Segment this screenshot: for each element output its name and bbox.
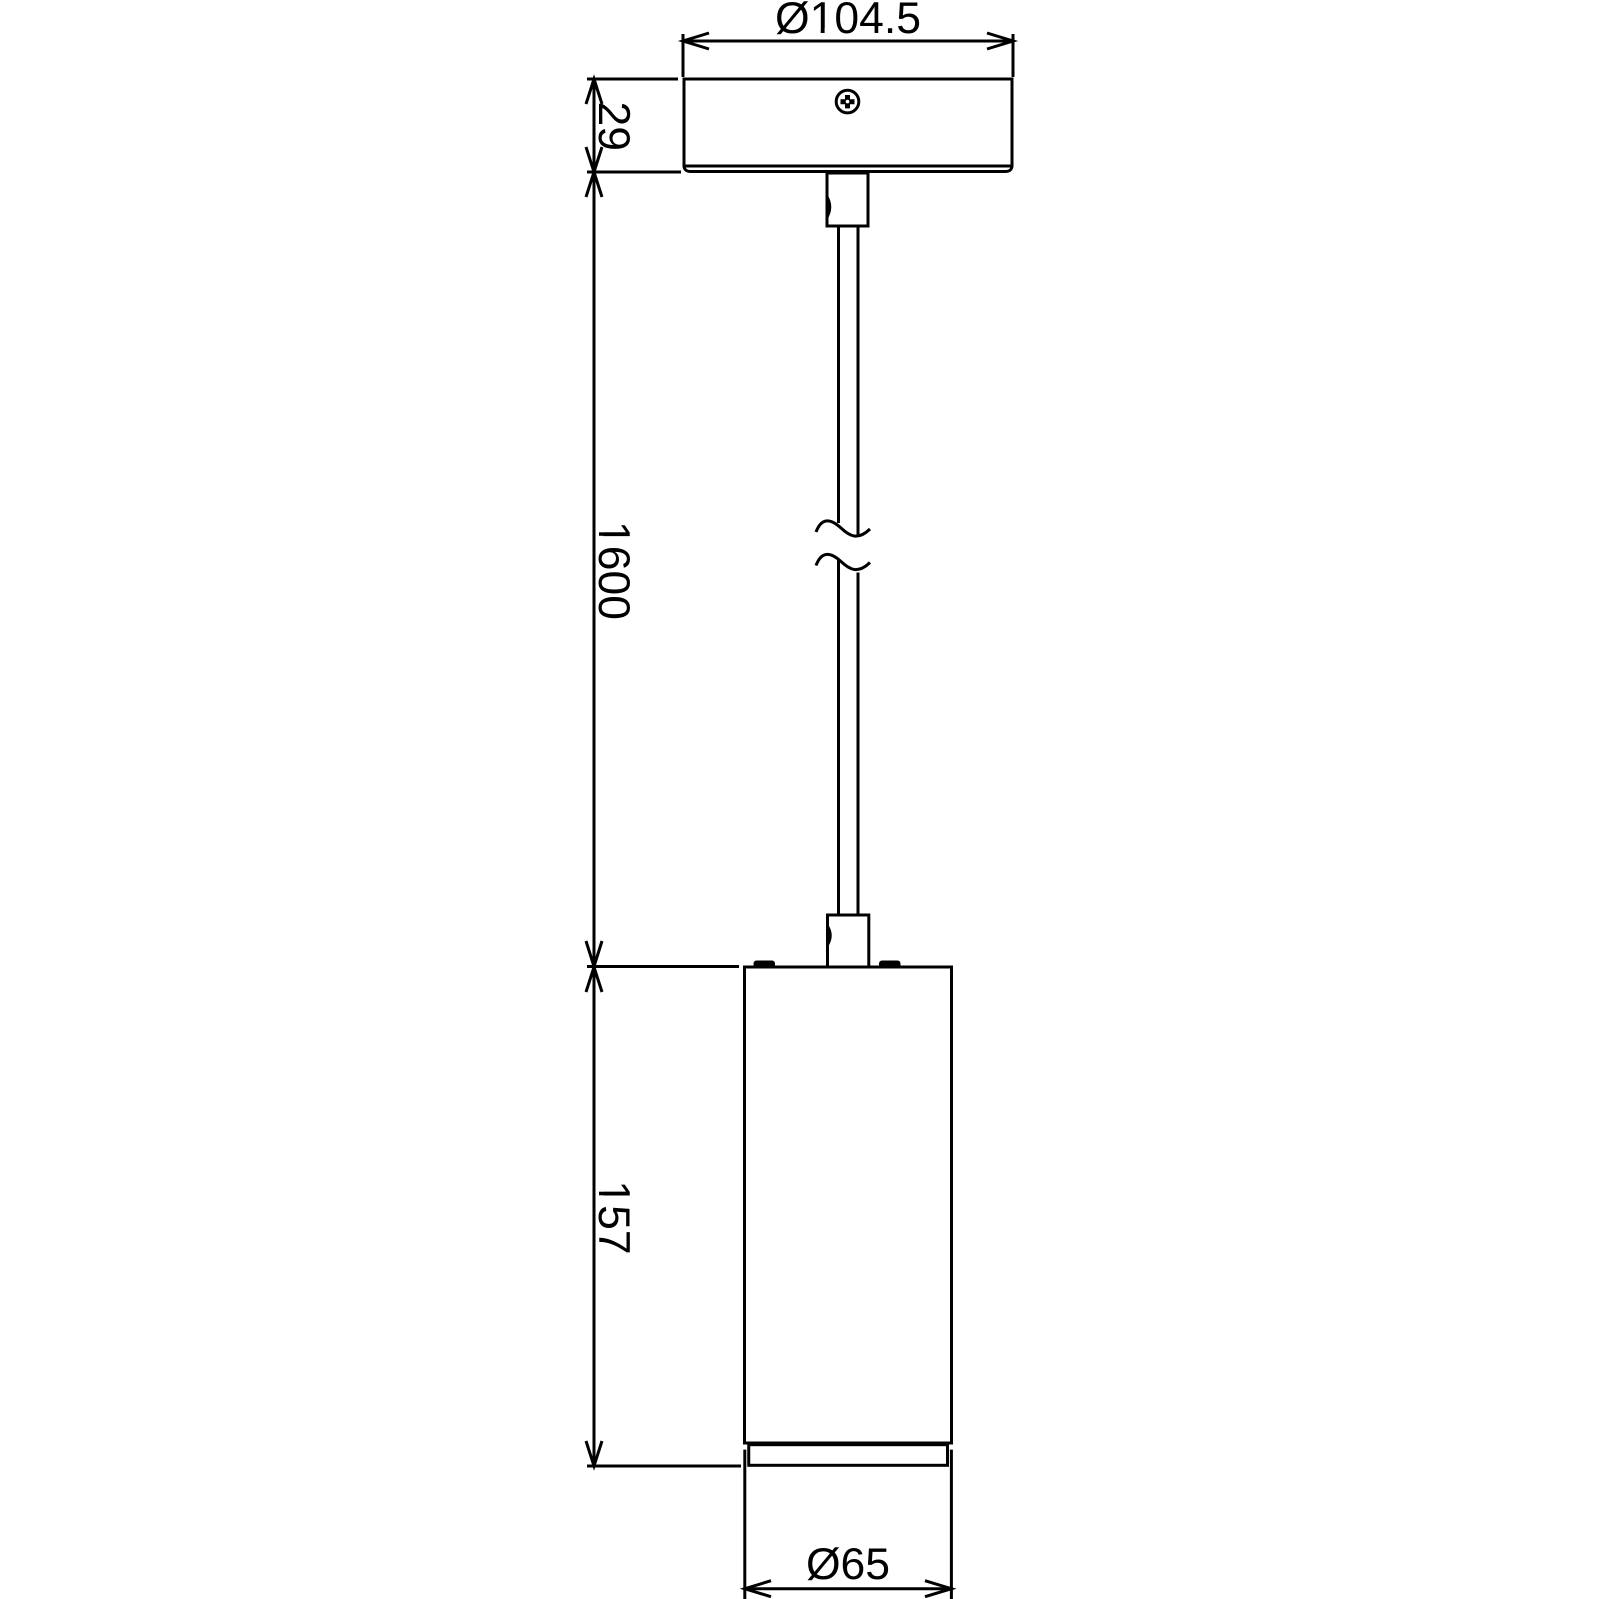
svg-text:157: 157	[589, 1180, 638, 1254]
svg-text:1600: 1600	[589, 521, 638, 620]
svg-text:29: 29	[589, 101, 638, 151]
svg-text:Ø104.5: Ø104.5	[775, 0, 921, 43]
svg-text:Ø65: Ø65	[806, 1540, 890, 1589]
